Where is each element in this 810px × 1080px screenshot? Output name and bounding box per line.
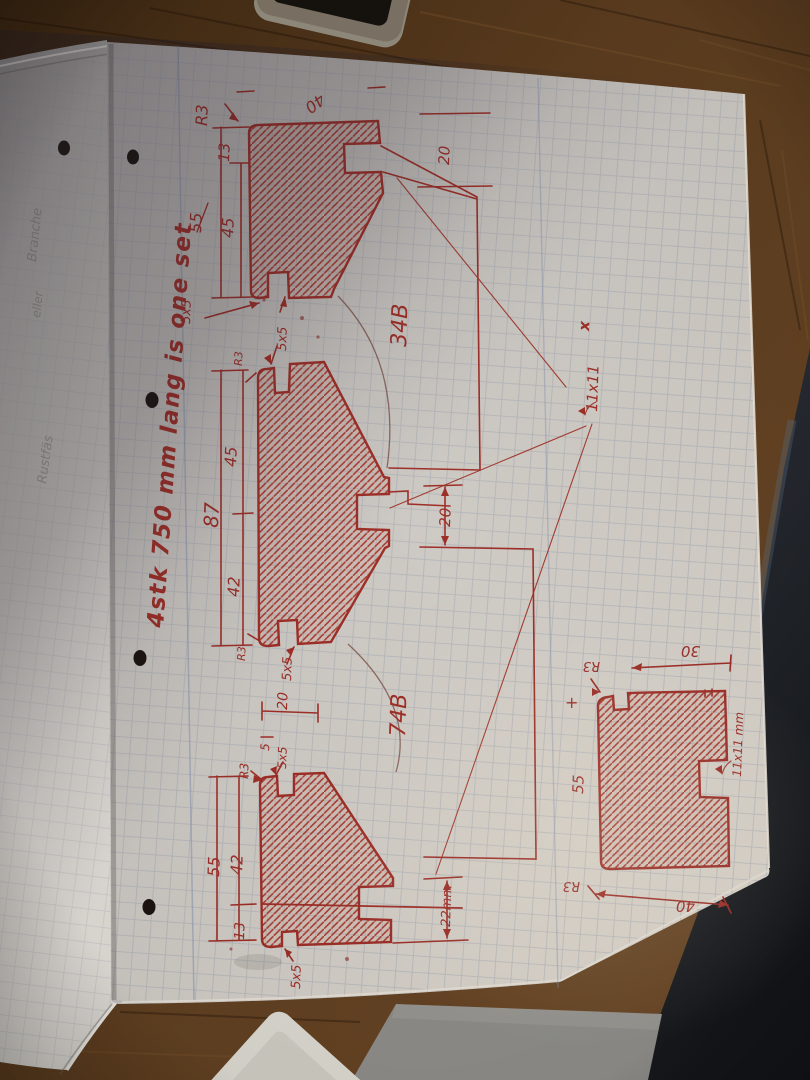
photo-of-sketch-notebook: 4stk 750 mm lang is one set Branche elle… [0, 0, 810, 1080]
vignette [0, 0, 810, 1080]
